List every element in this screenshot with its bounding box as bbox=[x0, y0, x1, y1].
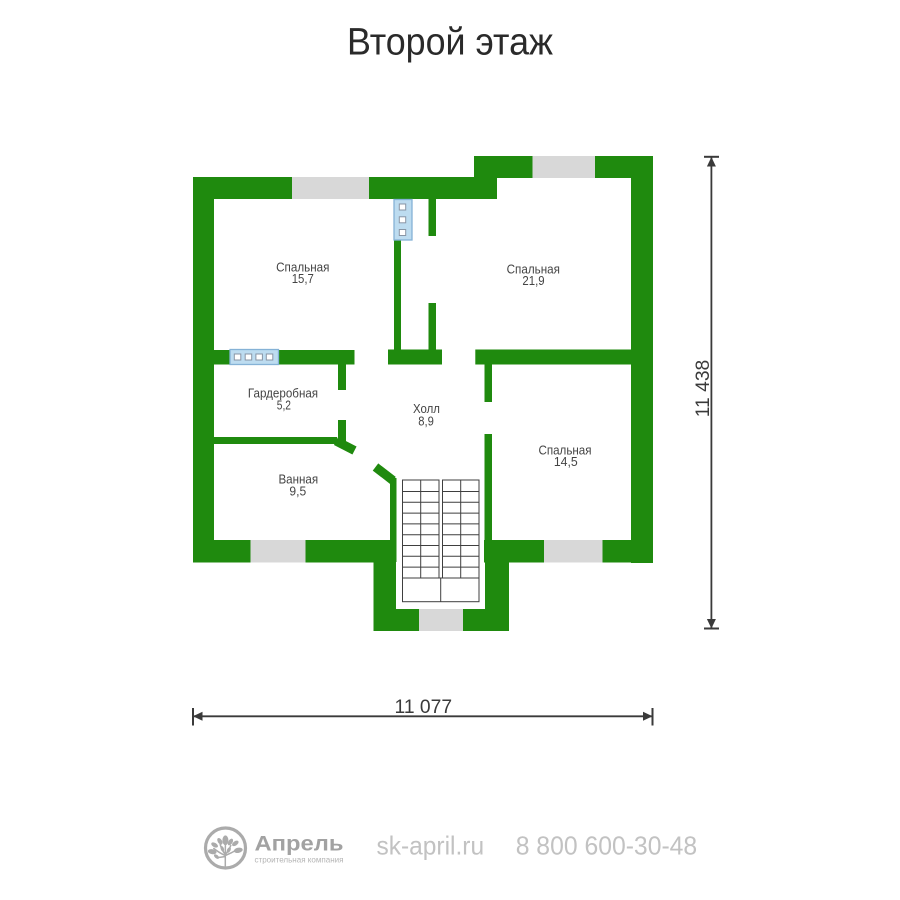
svg-text:8,9: 8,9 bbox=[418, 414, 434, 428]
svg-text:8 800 600-30-48: 8 800 600-30-48 bbox=[516, 830, 698, 860]
svg-text:9,5: 9,5 bbox=[289, 485, 306, 499]
svg-text:21,9: 21,9 bbox=[522, 274, 544, 288]
svg-text:5,2: 5,2 bbox=[277, 398, 291, 412]
svg-text:15,7: 15,7 bbox=[292, 272, 314, 286]
svg-text:строительная компания: строительная компания bbox=[255, 855, 344, 865]
svg-text:Апрель: Апрель bbox=[255, 832, 344, 856]
svg-text:11 077: 11 077 bbox=[395, 697, 453, 718]
svg-text:sk-april.ru: sk-april.ru bbox=[377, 831, 485, 861]
svg-text:11 438: 11 438 bbox=[693, 360, 714, 418]
svg-text:Второй этаж: Второй этаж bbox=[347, 22, 554, 64]
svg-text:14,5: 14,5 bbox=[554, 455, 578, 469]
